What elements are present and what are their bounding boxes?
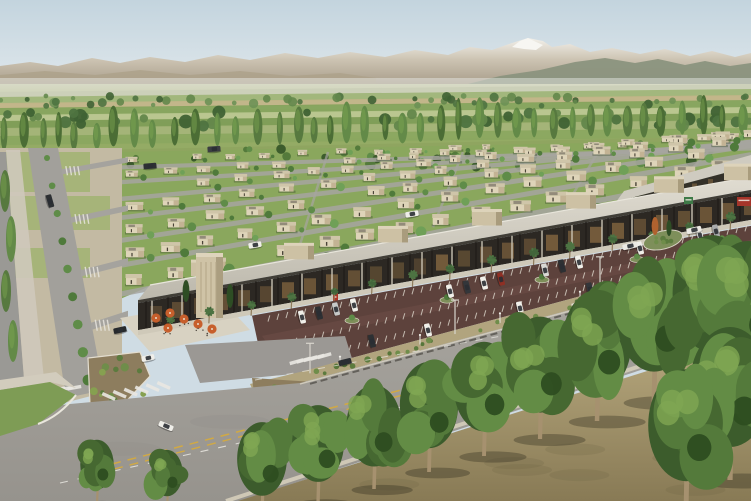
house bbox=[363, 173, 377, 182]
rooftop-box bbox=[378, 226, 408, 243]
yard-tree bbox=[460, 181, 468, 189]
yard-tree bbox=[282, 152, 291, 161]
storefront-window bbox=[458, 251, 470, 267]
yard-tree bbox=[246, 146, 252, 152]
yard-tree bbox=[330, 219, 339, 228]
yard-tree bbox=[422, 189, 428, 195]
house bbox=[432, 214, 451, 226]
shrub bbox=[323, 371, 327, 375]
house bbox=[196, 235, 214, 246]
yard-tree bbox=[687, 138, 695, 146]
house bbox=[555, 160, 572, 170]
house bbox=[523, 177, 544, 188]
yard-tree bbox=[651, 148, 655, 152]
shrub bbox=[414, 346, 419, 351]
median-tree bbox=[63, 265, 71, 273]
yard-tree bbox=[140, 174, 146, 180]
shrub bbox=[420, 342, 424, 346]
yard-tree bbox=[247, 178, 253, 184]
yard-tree bbox=[502, 172, 511, 181]
house bbox=[167, 267, 185, 279]
house bbox=[476, 160, 491, 169]
median-tree bbox=[58, 237, 66, 245]
yard-tree bbox=[180, 170, 185, 175]
yard-tree bbox=[308, 206, 315, 213]
yard-tree bbox=[212, 169, 218, 175]
cypress-tree bbox=[183, 280, 190, 302]
house bbox=[485, 183, 507, 194]
accent-tree bbox=[652, 217, 659, 235]
yard-tree bbox=[499, 156, 504, 161]
yard-tree bbox=[252, 235, 258, 241]
median-tree bbox=[54, 210, 61, 217]
house bbox=[516, 154, 536, 163]
house bbox=[355, 229, 376, 241]
yard-tree bbox=[359, 170, 363, 174]
yard-tree bbox=[416, 176, 422, 182]
yard-tree bbox=[323, 173, 328, 178]
median-tree bbox=[49, 182, 56, 189]
house bbox=[644, 157, 665, 168]
yard-tree bbox=[492, 147, 495, 150]
yard-tree bbox=[299, 227, 304, 232]
rooftop-box bbox=[472, 209, 502, 226]
house bbox=[278, 183, 295, 192]
yard-tree bbox=[572, 155, 579, 162]
yard-tree bbox=[254, 166, 259, 171]
yard-tree bbox=[337, 183, 345, 191]
shrub bbox=[495, 320, 499, 324]
yard-tree bbox=[348, 150, 353, 155]
yard-tree bbox=[180, 248, 189, 257]
median-tree bbox=[44, 155, 50, 161]
shrub bbox=[406, 350, 410, 354]
yard-tree bbox=[588, 177, 597, 186]
yard-tree bbox=[448, 170, 454, 176]
yard-tree bbox=[203, 158, 208, 163]
yard-tree bbox=[355, 145, 360, 150]
shrub bbox=[426, 337, 432, 343]
storefront-window bbox=[304, 278, 316, 294]
yard-tree bbox=[611, 151, 616, 156]
rendering-canvas bbox=[0, 0, 751, 501]
storefront-window bbox=[634, 219, 646, 235]
yard-tree bbox=[276, 144, 286, 154]
yard-tree bbox=[265, 211, 273, 219]
yard-tree bbox=[229, 216, 234, 221]
yard-tree bbox=[695, 143, 700, 148]
yard-tree bbox=[214, 184, 221, 191]
yard-tree bbox=[148, 209, 153, 214]
yard-tree bbox=[389, 191, 395, 197]
shrub bbox=[478, 328, 482, 332]
yard-tree bbox=[179, 203, 186, 210]
yard-tree bbox=[271, 155, 275, 159]
yard-tree bbox=[236, 156, 241, 161]
cypress-tree bbox=[227, 284, 234, 308]
rooftop-box bbox=[654, 176, 684, 193]
house bbox=[509, 200, 532, 212]
yard-tree bbox=[147, 254, 155, 262]
yard-tree bbox=[730, 142, 739, 151]
retail-sign bbox=[737, 197, 751, 206]
storefront-window bbox=[590, 227, 602, 243]
yard-tree bbox=[357, 159, 362, 164]
median-tree bbox=[78, 347, 88, 357]
yard-tree bbox=[466, 148, 471, 153]
yard-tree bbox=[221, 200, 228, 207]
median-tree bbox=[68, 292, 77, 301]
yard-tree bbox=[394, 157, 398, 161]
house bbox=[380, 162, 394, 171]
storefront-window bbox=[700, 207, 712, 223]
storefront-window bbox=[260, 286, 272, 302]
yard-tree bbox=[187, 222, 196, 231]
storefront-window bbox=[392, 262, 404, 278]
road-car bbox=[140, 354, 155, 364]
rooftop-box bbox=[566, 192, 596, 209]
rooftop-box bbox=[284, 243, 314, 259]
shrub bbox=[377, 356, 382, 361]
shrub bbox=[334, 364, 340, 370]
yard-tree bbox=[537, 151, 542, 156]
architectural-rendering: Aerial rendering of a master-planned des… bbox=[0, 0, 751, 501]
yard-tree bbox=[619, 165, 629, 175]
yard-tree bbox=[259, 195, 264, 200]
yard-tree bbox=[461, 198, 469, 206]
storefront-window bbox=[546, 235, 558, 251]
yard-tree bbox=[415, 204, 421, 210]
shrub bbox=[387, 351, 391, 355]
yard-tree bbox=[539, 172, 544, 177]
cypress-tree bbox=[666, 220, 671, 236]
storefront-window bbox=[348, 270, 360, 286]
median-tree bbox=[73, 320, 83, 330]
shrub bbox=[314, 368, 320, 374]
yard-tree bbox=[293, 176, 297, 180]
house bbox=[125, 274, 143, 286]
yard-tree bbox=[424, 150, 427, 153]
yard-tree bbox=[147, 231, 154, 238]
rooftop-box bbox=[724, 164, 751, 181]
house bbox=[353, 207, 373, 218]
yard-tree bbox=[465, 159, 469, 163]
